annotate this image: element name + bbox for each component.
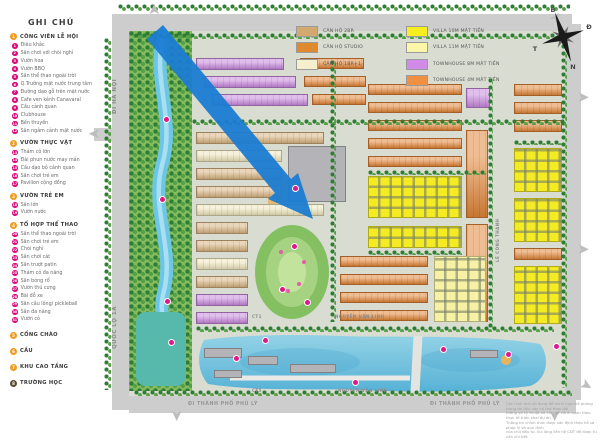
item-number-badge: 9 xyxy=(12,105,18,111)
legend-item: 3Vườn hoa xyxy=(12,59,112,64)
linear-park xyxy=(129,31,192,391)
color-swatch xyxy=(406,75,428,86)
legend-item-label: Thảm cỏ lớn xyxy=(21,150,51,155)
legend-item: 12Sân ngắm cảnh mặt nước xyxy=(12,129,112,134)
legend-section-header: 8TRƯỜNG HỌC xyxy=(10,380,112,387)
legend-section-header: 5CỔNG CHÀO xyxy=(10,332,112,339)
item-number-badge: 3 xyxy=(12,58,18,64)
legend-item-label: Vườn nước xyxy=(21,210,46,215)
legend-item: 31Vườn cỏ xyxy=(12,317,112,322)
legend-item-label: Cafe ven kênh Canavaral xyxy=(21,98,81,103)
legend-section-header: 4TỔ HỢP THỂ THAO xyxy=(10,222,112,229)
building-block-tan xyxy=(196,168,282,180)
legend-section-label: VƯỜN THỰC VẬT xyxy=(20,140,72,146)
map-marker xyxy=(553,343,560,350)
building-block-tan xyxy=(196,222,248,234)
building-block-orange xyxy=(514,248,562,260)
building-block-yellow xyxy=(368,226,462,248)
item-number-badge: 22 xyxy=(12,247,18,253)
unit-legend-label: TOWNHOUSE 4M MẶT TIỀN xyxy=(433,78,500,83)
road-label: QUỐC LỘ 1A xyxy=(112,296,118,360)
map-marker xyxy=(352,379,359,386)
section-number-badge: 3 xyxy=(10,193,17,200)
legend-item-label: Sân chơi trẻ em xyxy=(21,240,59,245)
map-marker xyxy=(440,346,447,353)
tree-row xyxy=(368,170,486,175)
unit-legend-label: VILLA 10M MẶT TIỀN xyxy=(433,29,484,34)
item-number-badge: 6 xyxy=(12,82,18,88)
legend-item: 8Cafe ven kênh Canavaral xyxy=(12,97,112,102)
legend-item-label: Vườn thú cưng xyxy=(21,286,56,291)
legend-item: 22Chòi nghỉ xyxy=(12,247,112,252)
legend-item: 5Sân thể thao ngoài trời xyxy=(12,74,112,79)
legend-item-label: Đài phun nước may mắn xyxy=(21,158,80,163)
building-block-yellow xyxy=(368,176,462,218)
color-swatch xyxy=(406,26,428,37)
item-number-badge: 19 xyxy=(12,210,18,216)
map-marker xyxy=(163,116,170,123)
section-number-badge: 1 xyxy=(10,33,17,40)
legend-item: 14Đài phun nước may mắn xyxy=(12,158,112,163)
legend-item: 29Sân cầu lông/ pickleball xyxy=(12,302,112,307)
building-block-purple xyxy=(196,294,248,306)
item-number-badge: 27 xyxy=(12,286,18,292)
disclaimer: Các hình ảnh sử dụng để minh họa/mô phỏn… xyxy=(506,402,598,440)
legend-item: 24Sân trượt patin xyxy=(12,263,112,268)
building-block-cream xyxy=(196,204,324,216)
building-block-orange xyxy=(312,94,366,105)
section-number-badge: 5 xyxy=(10,332,17,339)
legend-section: 4TỔ HỢP THỂ THAO20Sân thể thao ngoài trờ… xyxy=(10,222,112,323)
building-block-gray xyxy=(214,370,242,378)
item-number-badge: 15 xyxy=(12,165,18,171)
item-number-badge: 17 xyxy=(12,181,18,187)
compass-west: T xyxy=(533,45,538,53)
building-block-gray xyxy=(248,356,278,365)
map-marker xyxy=(304,299,311,306)
legend-item-label: Bến thuyền xyxy=(21,121,49,126)
legend-item: 1Điêu khắc xyxy=(12,43,112,48)
building-block-yellow xyxy=(514,266,562,324)
road-label: LÊ CÔNG THANH xyxy=(495,210,500,270)
legend-panel: GHI CHÚ 1CÔNG VIÊN LỄ HỘI1Điêu khắc2Sân … xyxy=(10,18,112,390)
building-block-orange xyxy=(368,138,462,149)
road-entry-arrow-icon: ➤ xyxy=(147,3,162,16)
legend-item-label: Sân cầu lông/ pickleball xyxy=(21,302,78,307)
disclaimer-line: của chủ đầu tư. Vui lòng liên hệ CĐT để … xyxy=(506,430,598,439)
compass-south: N xyxy=(570,63,575,71)
legend-item-label: Thảm cỏ đa năng xyxy=(21,271,63,276)
legend-item: 6Q.Trường mặt nước trung tâm xyxy=(12,82,112,87)
item-number-badge: 11 xyxy=(12,121,18,127)
legend-item-label: Sân chơi với chòi nghỉ xyxy=(21,51,74,56)
building-block-tan xyxy=(196,186,282,198)
unit-legend-label: CĂN HỘ 2BR xyxy=(323,29,354,34)
unit-legend-label: CĂN HỘ 1BR+1 xyxy=(323,62,361,67)
unit-legend-label: TOWNHOUSE 8M MẶT TIỀN xyxy=(433,62,500,67)
unit-legend-label: VILLA 11M MẶT TIỀN xyxy=(433,45,484,50)
legend-item: 28Bãi đỗ xe xyxy=(12,294,112,299)
item-number-badge: 5 xyxy=(12,74,18,80)
item-number-badge: 30 xyxy=(12,309,18,315)
color-swatch xyxy=(406,59,428,70)
unit-legend-row: CĂN HỘ STUDIO xyxy=(296,42,363,53)
item-number-badge: 28 xyxy=(12,294,18,300)
building-block-purple xyxy=(212,94,308,106)
item-number-badge: 31 xyxy=(12,317,18,323)
item-number-badge: 23 xyxy=(12,255,18,261)
item-number-badge: 7 xyxy=(12,90,18,96)
tree-row xyxy=(514,140,562,145)
road-entry-arrow-icon: ➤ xyxy=(577,242,590,257)
legend-title: GHI CHÚ xyxy=(28,18,112,27)
legend-section-header: 1CÔNG VIÊN LỄ HỘI xyxy=(10,33,112,40)
legend-item-label: Sân lớn xyxy=(21,203,39,208)
legend-section: 8TRƯỜNG HỌC xyxy=(10,380,112,387)
color-swatch xyxy=(296,42,318,53)
legend-item: 15Cầu dạo bộ cảnh quan xyxy=(12,166,112,171)
compass-east: Đ xyxy=(586,23,592,31)
unit-legend-row: CĂN HỘ 1BR+1 xyxy=(296,59,363,70)
building-block-orange xyxy=(514,102,562,114)
item-number-badge: 13 xyxy=(12,150,18,156)
legend-item-label: Cầu cảnh quan xyxy=(21,105,57,110)
legend-item: 13Thảm cỏ lớn xyxy=(12,150,112,155)
legend-section-label: TỔ HỢP THỂ THAO xyxy=(20,222,78,228)
legend-item-label: Sân thể thao ngoài trời xyxy=(21,232,76,237)
building-block-orange xyxy=(368,156,462,167)
legend-sections: 1CÔNG VIÊN LỄ HỘI1Điêu khắc2Sân chơi với… xyxy=(10,33,112,387)
unit-legend-row: VILLA 11M MẶT TIỀN xyxy=(406,42,500,53)
legend-item-label: Sân chơi cát xyxy=(21,255,50,260)
item-number-badge: 14 xyxy=(12,158,18,164)
legend-section-label: CẦU xyxy=(20,348,33,354)
item-number-badge: 4 xyxy=(12,66,18,72)
unit-legend-label: CĂN HỘ STUDIO xyxy=(323,45,363,50)
building-block-orange xyxy=(368,102,462,113)
legend-item-label: Sân ngắm cảnh mặt nước xyxy=(21,129,83,134)
building-block-tan xyxy=(196,276,248,288)
legend-section-header: 7KHU CAO TẦNG xyxy=(10,364,112,371)
map-marker xyxy=(292,185,299,192)
legend-item-label: Chòi nghỉ xyxy=(21,247,44,252)
item-number-badge: 24 xyxy=(12,263,18,269)
building-block-purple xyxy=(204,76,296,88)
road-right xyxy=(565,24,581,400)
section-number-badge: 6 xyxy=(10,348,17,355)
tree-row xyxy=(368,250,462,255)
compass-star-major xyxy=(534,5,592,68)
building-block-orange xyxy=(340,274,428,285)
item-number-badge: 2 xyxy=(12,51,18,57)
road-label: CT5 xyxy=(252,388,262,393)
section-number-badge: 2 xyxy=(10,140,17,147)
legend-section: 6CẦU xyxy=(10,348,112,355)
compass-north: B xyxy=(551,6,556,14)
legend-section-header: 3VƯỜN TRẺ EM xyxy=(10,193,112,200)
item-number-badge: 8 xyxy=(12,97,18,103)
item-number-badge: 18 xyxy=(12,202,18,208)
legend-item: 27Vườn thú cưng xyxy=(12,286,112,291)
section-number-badge: 8 xyxy=(10,380,17,387)
legend-section-label: CÔNG VIÊN LỄ HỘI xyxy=(20,34,78,40)
building-block-tan xyxy=(196,240,248,252)
unit-legend-row: TOWNHOUSE 8M MẶT TIỀN xyxy=(406,59,500,70)
legend-item: 2Sân chơi với chòi nghỉ xyxy=(12,51,112,56)
legend-item-label: Sân đa năng xyxy=(21,310,51,315)
tree-row xyxy=(561,30,567,388)
building-block-gray xyxy=(288,146,346,202)
legend-item: 30Sân đa năng xyxy=(12,309,112,314)
legend-item: 20Sân thể thao ngoài trời xyxy=(12,232,112,237)
road-label: ĐI HÀ NỘI xyxy=(112,66,118,126)
map-marker xyxy=(168,339,175,346)
legend-section-header: 2VƯỜN THỰC VẬT xyxy=(10,140,112,147)
legend-item-label: Clubhouse xyxy=(21,113,46,118)
legend-item-label: Đường dạo gỗ trên mặt nước xyxy=(21,90,90,95)
building-block-gray xyxy=(290,364,336,373)
map-marker xyxy=(505,351,512,358)
section-number-badge: 4 xyxy=(10,222,17,229)
tree-row xyxy=(488,78,493,330)
item-number-badge: 25 xyxy=(12,270,18,276)
color-swatch xyxy=(406,42,428,53)
tree-row xyxy=(196,326,554,332)
tree-row xyxy=(192,119,566,125)
item-number-badge: 10 xyxy=(12,113,18,119)
building-block-yellow xyxy=(514,198,562,242)
legend-section-label: TRƯỜNG HỌC xyxy=(20,380,62,386)
legend-item-label: Vườn cỏ xyxy=(21,317,40,322)
legend-item: 7Đường dạo gỗ trên mặt nước xyxy=(12,90,112,95)
building-block-gray xyxy=(470,350,498,358)
legend-item-label: Vườn BBQ xyxy=(21,67,45,72)
legend-item-label: Điêu khắc xyxy=(21,43,45,48)
legend-section-label: KHU CAO TẦNG xyxy=(20,364,68,370)
unit-legend-apartments: CĂN HỘ 2BRCĂN HỘ STUDIOCĂN HỘ 1BR+1 xyxy=(296,26,363,75)
legend-item-label: Bãi đỗ xe xyxy=(21,294,43,299)
legend-item-label: Vườn hoa xyxy=(21,59,44,64)
legend-section: 3VƯỜN TRẺ EM18Sân lớn19Vườn nước xyxy=(10,193,112,216)
road-entry-arrow-icon: ➤ xyxy=(169,409,184,422)
item-number-badge: 12 xyxy=(12,129,18,135)
legend-item: 9Cầu cảnh quan xyxy=(12,105,112,110)
road-label: CT1 xyxy=(252,314,262,319)
legend-item-label: Sân trượt patin xyxy=(21,263,57,268)
legend-section: 1CÔNG VIÊN LỄ HỘI1Điêu khắc2Sân chơi với… xyxy=(10,33,112,134)
legend-section-label: CỔNG CHÀO xyxy=(20,332,58,338)
legend-item: 23Sân chơi cát xyxy=(12,255,112,260)
map-marker xyxy=(279,286,286,293)
legend-item: 25Thảm cỏ đa năng xyxy=(12,271,112,276)
color-swatch xyxy=(296,59,318,70)
unit-legend-row: VILLA 10M MẶT TIỀN xyxy=(406,26,500,37)
compass-rose: B Đ N T xyxy=(531,3,595,71)
legend-section-header: 6CẦU xyxy=(10,348,112,355)
item-number-badge: 26 xyxy=(12,278,18,284)
section-number-badge: 7 xyxy=(10,364,17,371)
tree-row xyxy=(118,4,570,11)
building-block-tan xyxy=(196,132,324,144)
legend-section: 5CỔNG CHÀO xyxy=(10,332,112,339)
building-block-orange xyxy=(340,292,428,303)
map-marker xyxy=(164,298,171,305)
unit-legend-row: TOWNHOUSE 4M MẶT TIỀN xyxy=(406,75,500,86)
item-number-badge: 16 xyxy=(12,173,18,179)
map-marker xyxy=(233,355,240,362)
road-entry-arrow-icon: ➤ xyxy=(577,90,590,105)
building-block-purple xyxy=(196,58,284,70)
legend-item: 17Pavilion cộng đồng xyxy=(12,181,112,186)
item-number-badge: 29 xyxy=(12,302,18,308)
road-label: ĐI THÀNH PHỐ PHỦ LÝ xyxy=(188,402,258,407)
legend-item: 21Sân chơi trẻ em xyxy=(12,239,112,244)
building-block-purple xyxy=(196,312,248,324)
legend-section: 2VƯỜN THỰC VẬT13Thảm cỏ lớn14Đài phun nư… xyxy=(10,140,112,187)
road-label: ĐI THÀNH PHỐ PHỦ LÝ xyxy=(430,402,500,407)
legend-item-label: Sân chơi trẻ em xyxy=(21,174,59,179)
unit-legend-row: CĂN HỘ 2BR xyxy=(296,26,363,37)
road-label: NGUYỄN VĂN LINH xyxy=(335,314,384,319)
unit-legend-villas-townhouses: VILLA 10M MẶT TIỀNVILLA 11M MẶT TIỀNTOWN… xyxy=(406,26,500,92)
legend-item: 18Sân lớn xyxy=(12,203,112,208)
legend-item-label: Sân thể thao ngoài trời xyxy=(21,74,76,79)
legend-section: 7KHU CAO TẦNG xyxy=(10,364,112,371)
tree-row xyxy=(330,60,336,322)
building-block-cream xyxy=(196,150,282,162)
building-block-orange xyxy=(514,84,562,96)
building-block-cream xyxy=(196,258,248,270)
legend-item: 11Bến thuyền xyxy=(12,121,112,126)
item-number-badge: 1 xyxy=(12,43,18,49)
map-marker xyxy=(291,243,298,250)
building-block-paleyellow xyxy=(434,256,486,322)
color-swatch xyxy=(296,26,318,37)
building-block-yellow xyxy=(514,148,562,192)
building-block-orange xyxy=(340,256,428,267)
legend-item: 16Sân chơi trẻ em xyxy=(12,173,112,178)
legend-item: 10Clubhouse xyxy=(12,113,112,118)
item-number-badge: 21 xyxy=(12,239,18,245)
map-marker xyxy=(159,196,166,203)
legend-item-label: Pavilion cộng đồng xyxy=(21,181,66,186)
map-marker xyxy=(262,337,269,344)
legend-item-label: Cầu dạo bộ cảnh quan xyxy=(21,166,75,171)
legend-section-label: VƯỜN TRẺ EM xyxy=(20,193,64,199)
legend-item: 26Sân bóng rổ xyxy=(12,278,112,283)
legend-item-label: Sân bóng rổ xyxy=(21,279,50,284)
legend-item: 4Vườn BBQ xyxy=(12,66,112,71)
legend-item-label: Q.Trường mặt nước trung tâm xyxy=(21,82,92,87)
road-label: NGUYỄN VĂN LINH xyxy=(338,388,387,393)
item-number-badge: 20 xyxy=(12,232,18,238)
legend-item: 19Vườn nước xyxy=(12,210,112,215)
